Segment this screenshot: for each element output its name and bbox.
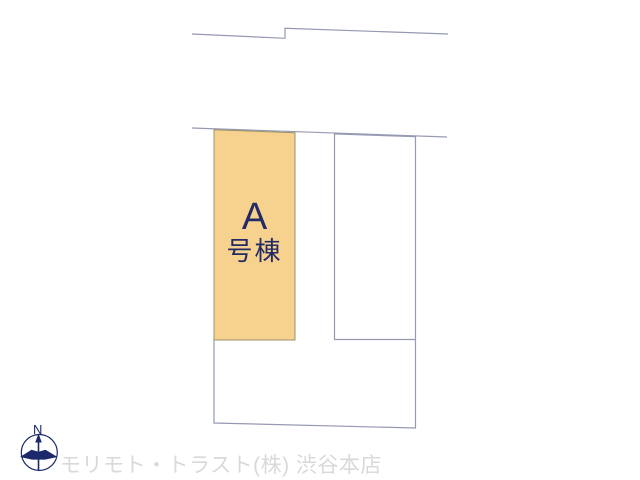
adjacent-lot-shape xyxy=(335,134,416,340)
compass-north-label: N xyxy=(33,422,42,437)
north-boundary-line xyxy=(192,28,448,38)
compass-north-icon: N xyxy=(20,422,58,471)
site-plan-canvas: N A 号棟 モリモト・トラスト(株) 渋谷本店 xyxy=(0,0,640,480)
lot-a-shape xyxy=(214,130,295,340)
site-lower-boundary xyxy=(214,340,416,429)
site-plan-drawing: N xyxy=(0,0,640,480)
